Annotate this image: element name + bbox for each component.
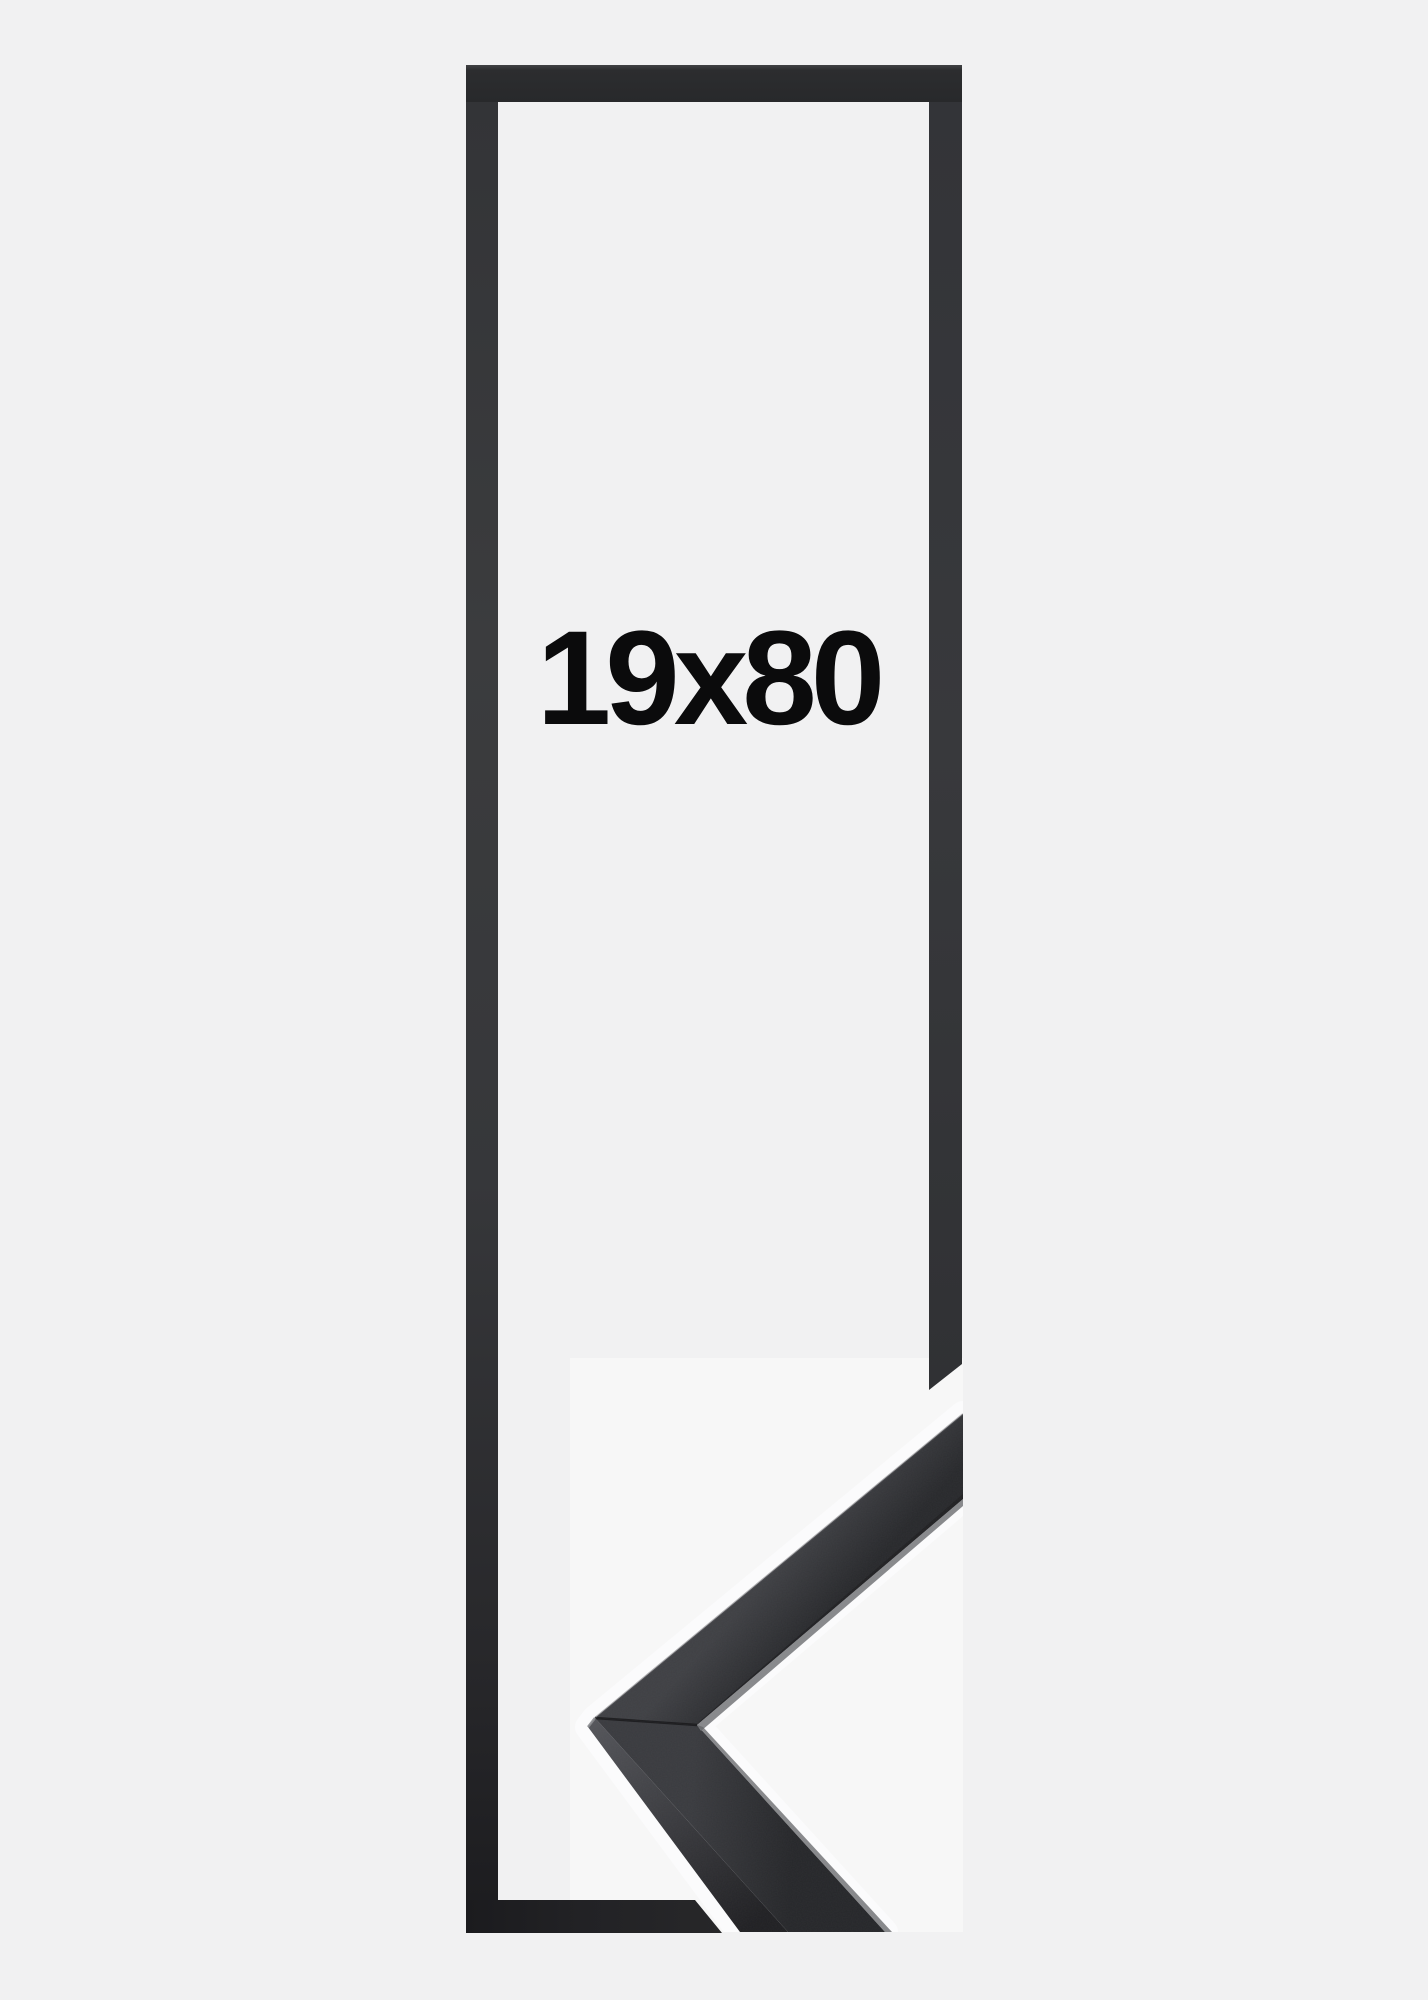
- frame-outline-top-bar: [466, 65, 962, 102]
- frame-size-illustration: 19x80: [0, 0, 1428, 2000]
- frame-outline-left-bar: [466, 102, 498, 1900]
- frame-outline-bottom-bar: [466, 1900, 722, 1933]
- size-label: 19x80: [537, 604, 881, 753]
- product-image: 19x80: [0, 0, 1428, 2000]
- frame-outline-right-bar: [929, 102, 962, 1390]
